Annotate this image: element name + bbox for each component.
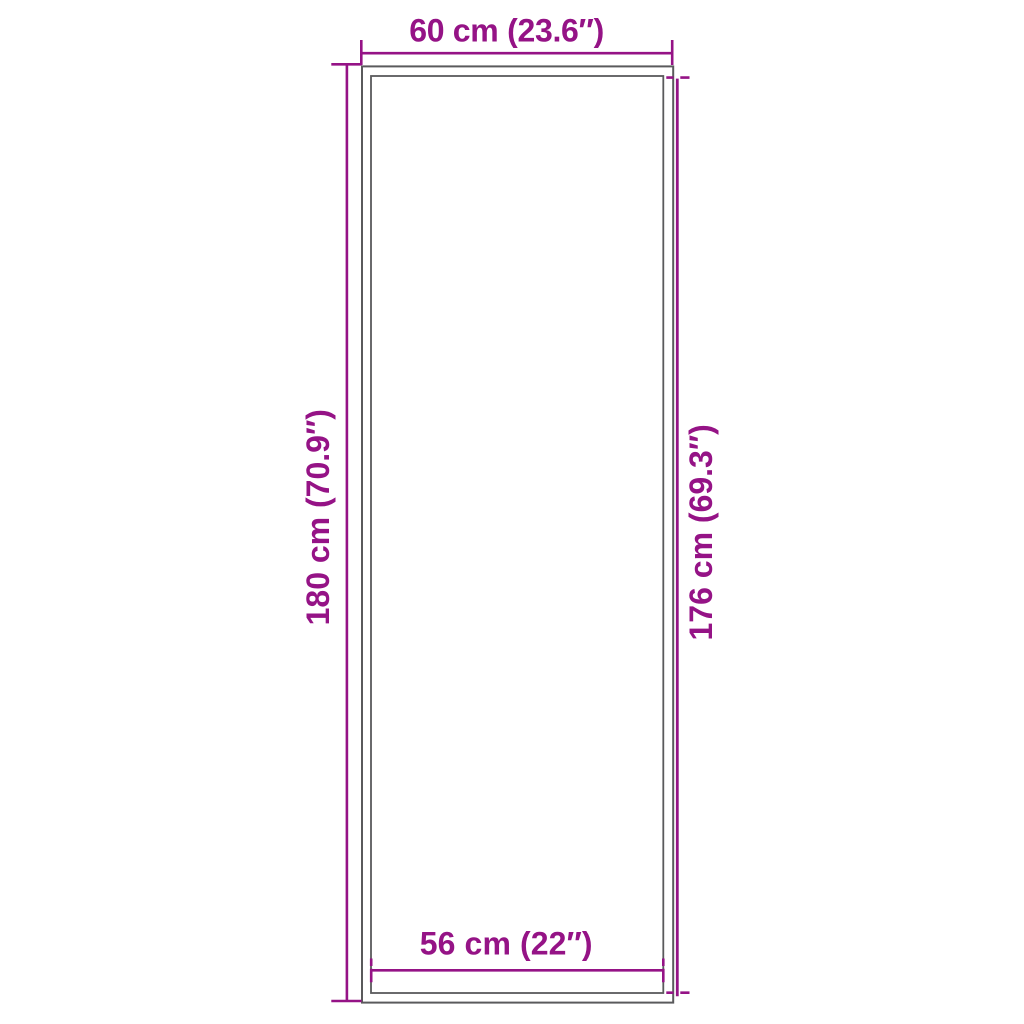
svg-text:180 cm (70.9″): 180 cm (70.9″) [300,409,336,625]
svg-text:56 cm (22″): 56 cm (22″) [420,926,593,962]
svg-text:60 cm (23.6″): 60 cm (23.6″) [409,13,604,49]
svg-text:176 cm (69.3″): 176 cm (69.3″) [683,424,719,640]
